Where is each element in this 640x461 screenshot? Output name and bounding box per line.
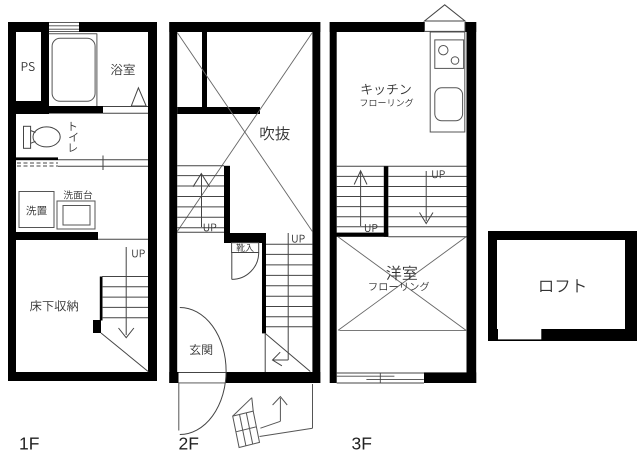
svg-text:1F: 1F [19,434,39,454]
svg-text:3F: 3F [352,434,372,454]
svg-text:2F: 2F [179,434,199,454]
